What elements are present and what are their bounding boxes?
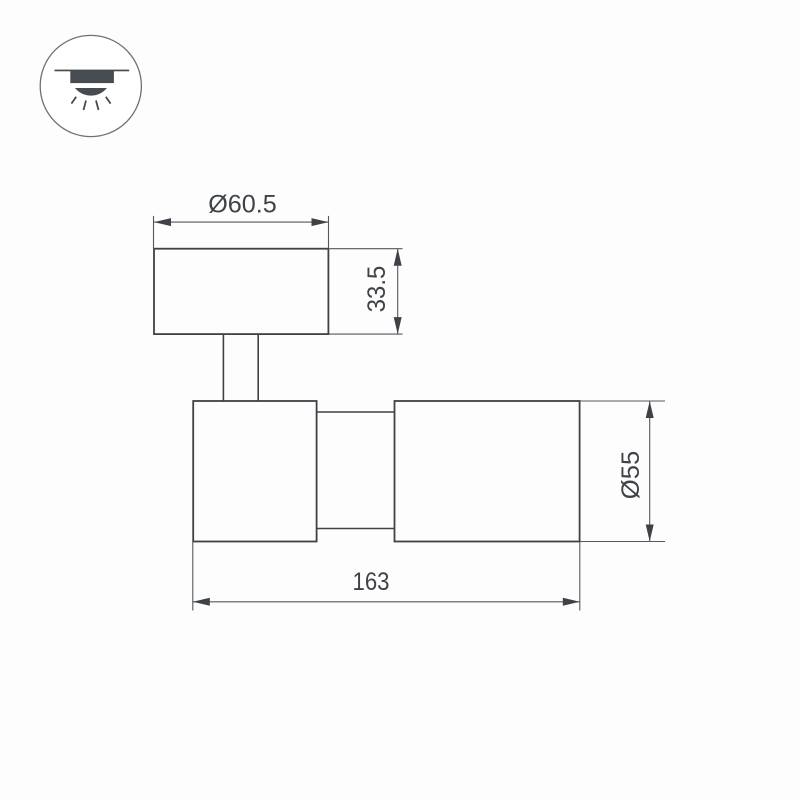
svg-text:163: 163	[353, 568, 390, 596]
svg-text:Ø60.5: Ø60.5	[208, 191, 277, 219]
svg-text:Ø55: Ø55	[617, 451, 645, 500]
svg-text:33.5: 33.5	[363, 266, 391, 313]
